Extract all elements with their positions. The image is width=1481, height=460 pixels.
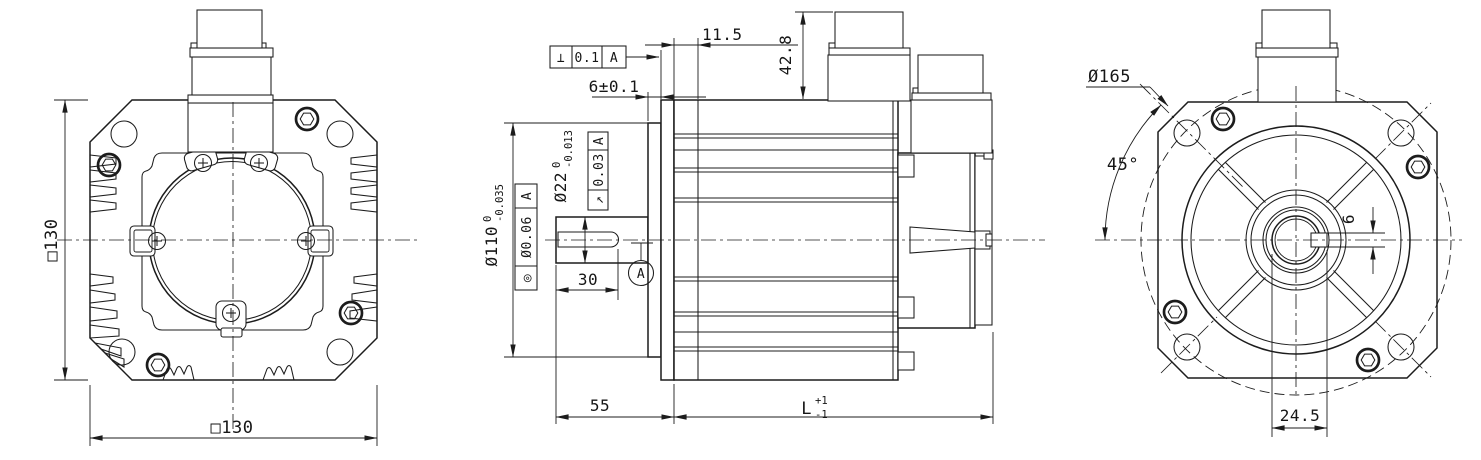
perpendicularity-icon: ⊥	[557, 51, 565, 66]
hex-socket-screw	[1212, 108, 1234, 130]
hex-socket-screw	[1407, 156, 1429, 178]
dim-spigot-depth: 6±0.1	[589, 77, 640, 96]
mounting-hole	[109, 339, 135, 365]
datum-label: A	[637, 267, 645, 282]
front-view: Ø165 45° 6 24.5	[1086, 10, 1462, 437]
rear-cover-circle	[149, 158, 315, 324]
runout-icon: ↗	[592, 196, 607, 204]
mounting-hole	[1174, 120, 1200, 146]
motor-drawing-svg: □130 □130	[0, 0, 1481, 460]
rear-view: □130 □130	[42, 10, 418, 446]
perpendicularity-tolerance: 0.1	[575, 51, 600, 66]
hex-socket-screw	[147, 354, 169, 376]
svg-text:Ø22: Ø22	[551, 172, 570, 202]
hex-socket-screw	[340, 302, 362, 324]
front-view-dimensions: Ø165 45° 6 24.5	[1086, 67, 1385, 437]
dim-flange-width: □130	[211, 418, 254, 438]
dim-shaft-to-key-top: 24.5	[1280, 406, 1321, 425]
rear-cover-circle-inner	[153, 162, 312, 321]
side-connector-rear	[911, 55, 992, 153]
mounting-hole	[327, 339, 353, 365]
bolt-hole-centerline	[1161, 317, 1217, 373]
svg-text:-0.013: -0.013	[563, 130, 575, 168]
fin-scallop	[263, 366, 294, 381]
dim-bolt-angle: 45°	[1107, 155, 1139, 175]
concentricity-icon: ◎	[520, 274, 535, 282]
hex-socket-screw	[296, 108, 318, 130]
runout-datum: A	[592, 137, 607, 145]
svg-text:-1: -1	[815, 409, 828, 421]
concentricity-frame: ◎ Ø0.06 A	[515, 184, 537, 290]
dim-pilot-diameter: Ø110 0 -0.035	[482, 184, 506, 266]
dim-connector-height: 42.8	[776, 35, 795, 76]
dim-shaft-diameter: Ø22 0 -0.013	[551, 130, 575, 202]
side-view: ⊥ 0.1 A 11.5 6±0.1 42.8	[482, 12, 1045, 424]
svg-text:+1: +1	[815, 395, 828, 407]
svg-text:Ø110: Ø110	[482, 226, 501, 267]
perpendicularity-datum: A	[610, 51, 618, 66]
bolt-hole-centerline	[1140, 84, 1244, 188]
mounting-hole	[111, 121, 137, 147]
dim-keyway-width: 6	[1339, 214, 1358, 224]
svg-text:L: L	[801, 399, 812, 419]
dim-shaft-length: 55	[590, 396, 610, 415]
dim-flange-height: □130	[42, 219, 62, 262]
mounting-hole	[327, 121, 353, 147]
dim-front-cover-depth: 11.5	[702, 25, 743, 44]
runout-frame: ↗ 0.03 A	[588, 132, 608, 210]
front-connector	[1256, 10, 1338, 102]
concentricity-datum: A	[520, 192, 535, 200]
dim-bolt-circle: Ø165	[1088, 67, 1131, 87]
dim-body-length: L +1 -1	[801, 395, 827, 421]
perpendicularity-frame: ⊥ 0.1 A	[550, 46, 659, 68]
rear-connector	[188, 10, 273, 152]
svg-text:0: 0	[551, 162, 563, 168]
runout-tolerance: 0.03	[592, 153, 607, 186]
side-connector-front	[828, 12, 910, 101]
svg-text:0: 0	[482, 216, 494, 222]
hex-socket-screw	[1164, 301, 1186, 323]
hex-socket-screw	[1357, 349, 1379, 371]
rear-housing	[898, 150, 993, 370]
cooling-fins	[90, 155, 377, 380]
concentricity-tolerance: Ø0.06	[520, 216, 535, 258]
dim-keyway-length: 30	[578, 270, 598, 289]
svg-text:-0.035: -0.035	[494, 184, 506, 222]
drawing-canvas: □130 □130	[0, 0, 1481, 460]
